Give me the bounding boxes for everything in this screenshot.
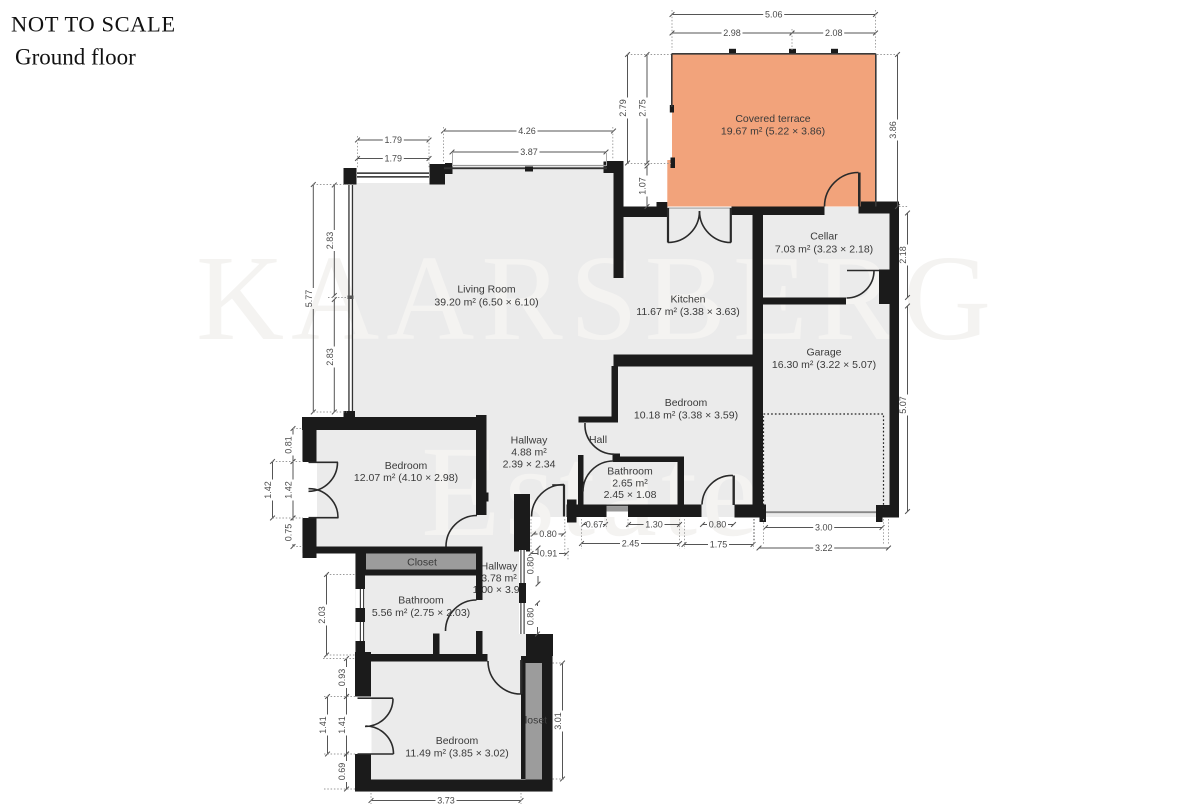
svg-text:5.56 m² (2.75 × 2.03): 5.56 m² (2.75 × 2.03) (372, 607, 470, 619)
svg-text:12.07 m² (4.10 × 2.98): 12.07 m² (4.10 × 2.98) (354, 472, 458, 484)
svg-text:1.41: 1.41 (337, 716, 347, 734)
svg-text:Cellar: Cellar (810, 231, 838, 243)
svg-text:2.03: 2.03 (317, 606, 327, 624)
svg-text:0.93: 0.93 (337, 669, 347, 687)
svg-text:1.75: 1.75 (710, 540, 728, 550)
svg-text:10.18 m² (3.38 × 3.59): 10.18 m² (3.38 × 3.59) (634, 410, 738, 422)
svg-text:0.75: 0.75 (284, 524, 294, 542)
svg-text:1.41: 1.41 (318, 716, 328, 734)
svg-text:Bathroom: Bathroom (607, 466, 653, 478)
svg-text:3.01: 3.01 (553, 712, 563, 730)
svg-text:2.98: 2.98 (723, 28, 741, 38)
svg-text:0.80: 0.80 (539, 529, 557, 539)
svg-text:Bedroom: Bedroom (385, 460, 428, 472)
svg-text:2.18: 2.18 (898, 246, 908, 264)
svg-text:3.78 m²: 3.78 m² (481, 573, 517, 585)
svg-text:3.73: 3.73 (437, 796, 455, 806)
svg-text:Bedroom: Bedroom (665, 397, 708, 409)
svg-text:1.42: 1.42 (263, 481, 273, 499)
svg-text:2.75: 2.75 (638, 99, 648, 117)
svg-text:2.83: 2.83 (325, 232, 335, 250)
svg-text:0.67: 0.67 (586, 520, 604, 530)
svg-text:1.42: 1.42 (284, 481, 294, 499)
svg-text:KAARSBERG: KAARSBERG (196, 231, 998, 366)
svg-text:5.06: 5.06 (765, 10, 783, 20)
svg-text:2.83: 2.83 (325, 348, 335, 366)
svg-text:2.45: 2.45 (622, 539, 640, 549)
svg-text:39.20 m² (6.50 × 6.10): 39.20 m² (6.50 × 6.10) (434, 297, 538, 309)
svg-text:2.08: 2.08 (825, 28, 843, 38)
svg-text:Covered terrace: Covered terrace (735, 113, 810, 125)
svg-text:1.30: 1.30 (645, 520, 663, 530)
svg-text:0.80: 0.80 (709, 520, 727, 530)
svg-text:7.03 m² (3.23 × 2.18): 7.03 m² (3.23 × 2.18) (775, 244, 873, 256)
svg-text:0.69: 0.69 (337, 763, 347, 781)
svg-text:3.86: 3.86 (888, 121, 898, 139)
svg-text:Closet: Closet (407, 557, 437, 569)
svg-text:Living Room: Living Room (457, 284, 516, 296)
svg-text:1.07: 1.07 (638, 177, 648, 195)
svg-text:16.30 m² (3.22 × 5.07): 16.30 m² (3.22 × 5.07) (772, 359, 876, 371)
svg-text:Ground floor: Ground floor (15, 45, 136, 70)
svg-text:3.22: 3.22 (815, 543, 833, 553)
svg-text:3.87: 3.87 (520, 147, 538, 157)
svg-text:5.77: 5.77 (304, 290, 314, 308)
svg-text:1.79: 1.79 (384, 154, 402, 164)
svg-text:2.45 × 1.08: 2.45 × 1.08 (604, 489, 657, 501)
svg-text:11.49 m² (3.85 × 3.02): 11.49 m² (3.85 × 3.02) (405, 748, 508, 760)
svg-text:11.67 m² (3.38 × 3.63): 11.67 m² (3.38 × 3.63) (636, 306, 739, 318)
svg-text:NOT TO SCALE: NOT TO SCALE (11, 12, 176, 37)
svg-text:Hall: Hall (589, 434, 607, 446)
svg-text:2.65 m²: 2.65 m² (612, 478, 648, 490)
svg-text:5.07: 5.07 (898, 396, 908, 414)
svg-text:2.39 × 2.34: 2.39 × 2.34 (503, 459, 556, 471)
svg-text:4.88 m²: 4.88 m² (511, 447, 547, 459)
svg-text:0.80: 0.80 (526, 608, 536, 626)
svg-text:0.80: 0.80 (526, 557, 536, 575)
svg-text:Bedroom: Bedroom (436, 735, 479, 747)
svg-text:1.79: 1.79 (384, 135, 402, 145)
svg-text:Hallway: Hallway (511, 435, 549, 447)
svg-text:Hallway: Hallway (481, 561, 519, 573)
svg-text:3.00: 3.00 (815, 523, 833, 533)
svg-text:2.79: 2.79 (618, 99, 628, 117)
svg-text:4.26: 4.26 (518, 126, 536, 136)
svg-text:Bathroom: Bathroom (398, 595, 444, 607)
svg-text:0.91: 0.91 (540, 549, 558, 559)
svg-text:loset: loset (525, 715, 547, 727)
svg-text:Kitchen: Kitchen (670, 294, 705, 306)
svg-text:19.67 m² (5.22 × 3.86): 19.67 m² (5.22 × 3.86) (721, 126, 825, 138)
svg-text:Garage: Garage (806, 347, 841, 359)
svg-text:0.81: 0.81 (284, 436, 294, 454)
